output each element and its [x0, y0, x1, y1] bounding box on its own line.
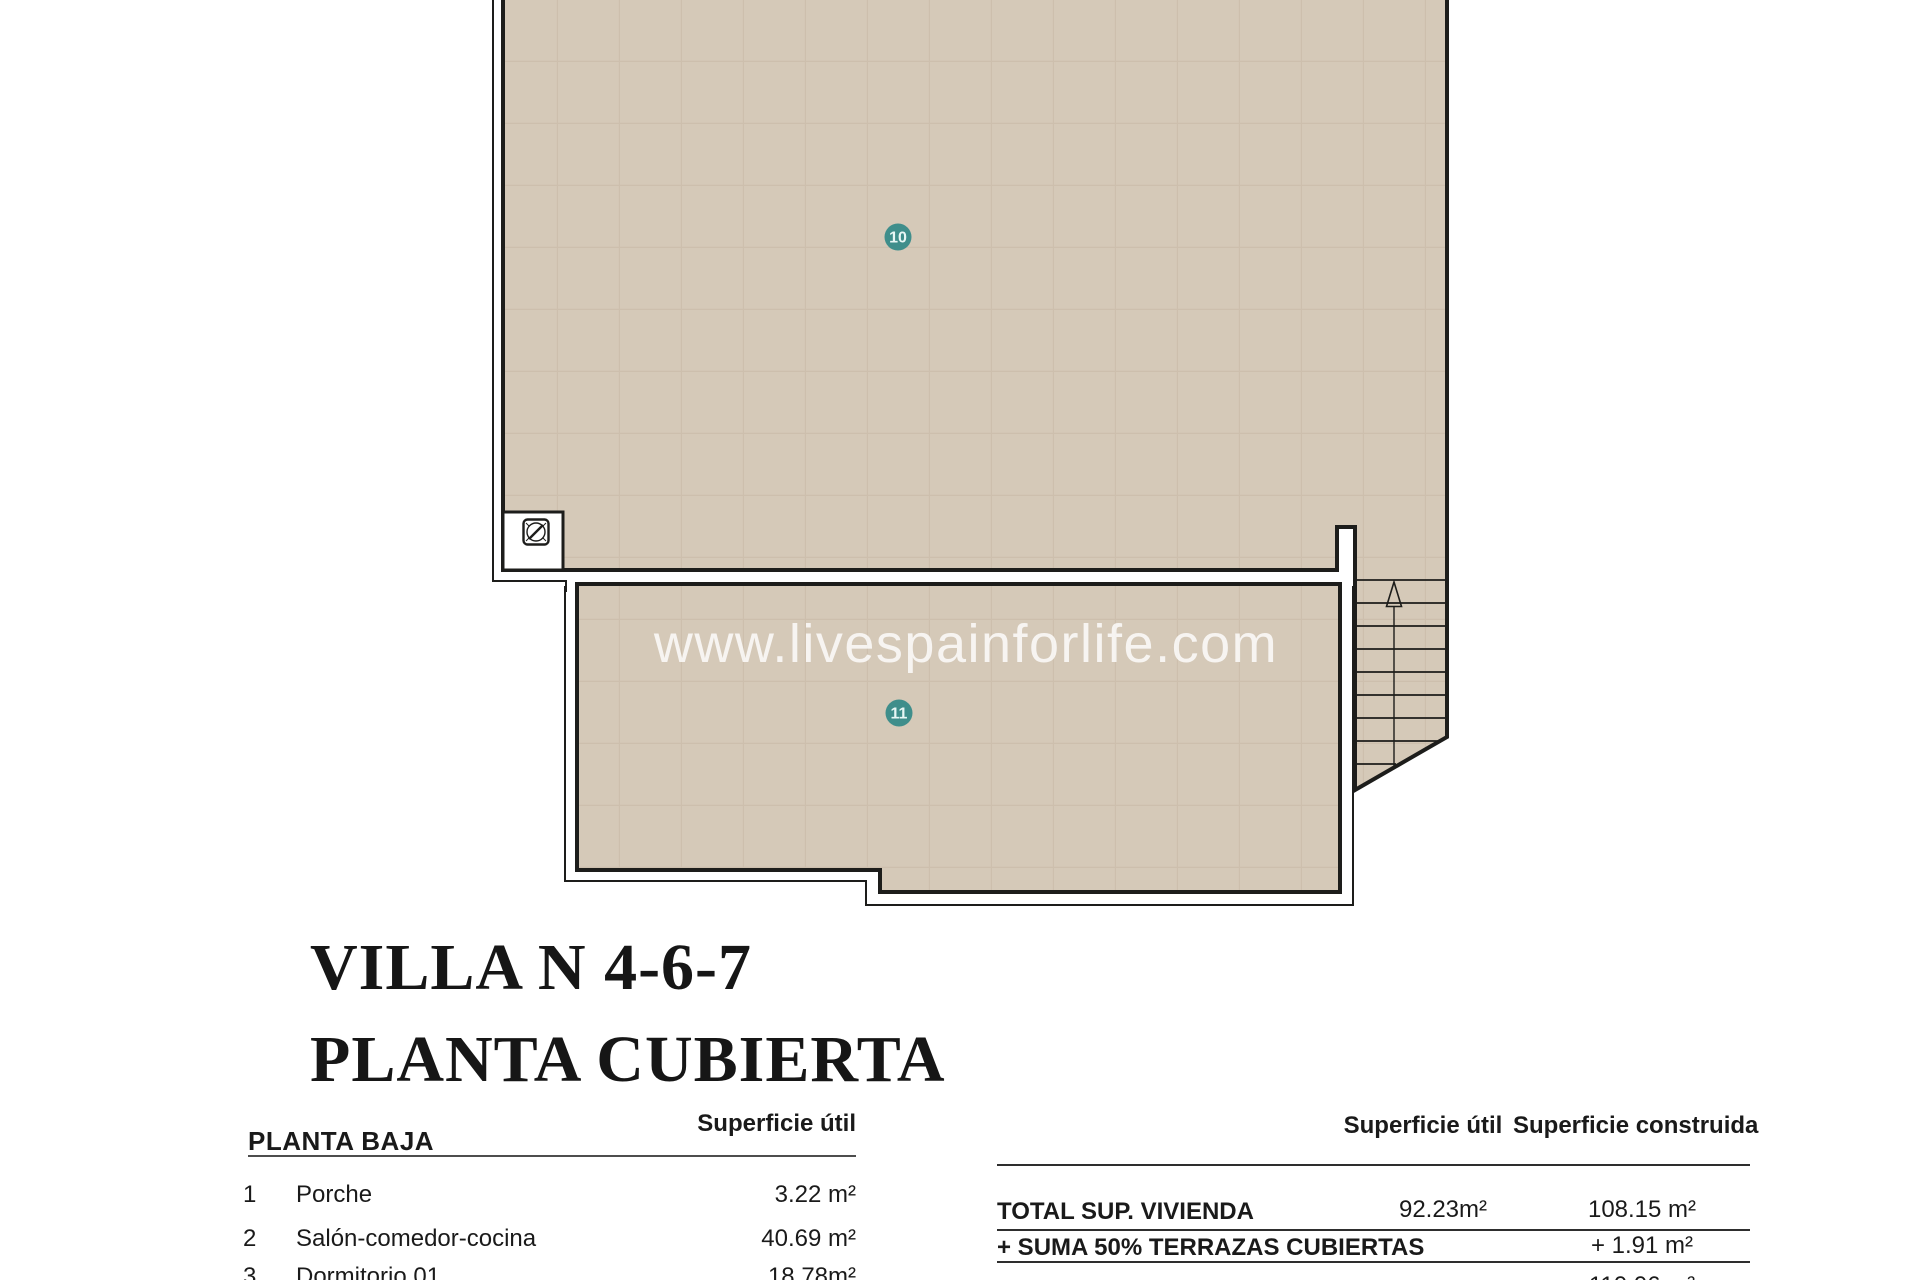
floor-plan-drawing: 10 11 www.livespainforlife.com: [0, 0, 1920, 1280]
plan-title: VILLA N 4-6-7 PLANTA CUBIERTA: [310, 922, 946, 1106]
room-marker-10: 10: [885, 224, 912, 251]
row-number: 2: [243, 1225, 256, 1253]
plan-title-line-2: PLANTA CUBIERTA: [310, 1014, 946, 1106]
row-value: 3.22 m²: [600, 1181, 856, 1209]
row-name: Dormitorio 01: [296, 1263, 440, 1280]
left-table-header-rule: [248, 1155, 856, 1157]
marker-label: 10: [889, 230, 907, 247]
right-table-rule: [997, 1164, 1750, 1166]
row-label: + SUMA 50% TERRAZAS CUBIERTAS: [997, 1234, 1424, 1262]
row-value: 18.78m²: [600, 1263, 856, 1280]
right-table-rule: [997, 1261, 1750, 1263]
left-table-col-header: Superficie útil: [600, 1110, 856, 1138]
room-marker-11: 11: [886, 700, 913, 727]
row-construida-value: 108.15 m²: [1522, 1196, 1762, 1224]
page: 10 11 www.livespainforlife.com VILLA N 4…: [0, 0, 1920, 1280]
row-value: 40.69 m²: [600, 1225, 856, 1253]
row-label: TOTAL SUP. VIVIENDA: [997, 1198, 1254, 1226]
watermark-text: www.livespainforlife.com: [653, 614, 1278, 674]
row-number: 1: [243, 1181, 256, 1209]
chimney-vent-icon: [524, 520, 549, 545]
row-name: Porche: [296, 1181, 372, 1209]
plan-title-line-1: VILLA N 4-6-7: [310, 922, 946, 1014]
marker-label: 11: [891, 706, 908, 723]
right-table-col2-header: Superficie construida: [1513, 1112, 1753, 1140]
row-name: Salón-comedor-cocina: [296, 1225, 536, 1253]
right-table-rule: [997, 1229, 1750, 1231]
row-construida-value: 110.06 m²: [1522, 1272, 1762, 1280]
row-number: 3: [243, 1263, 256, 1280]
row-construida-value: + 1.91 m²: [1522, 1232, 1762, 1260]
left-table-header: PLANTA BAJA: [248, 1126, 434, 1157]
right-table-col1-header: Superficie útil: [1303, 1112, 1543, 1140]
